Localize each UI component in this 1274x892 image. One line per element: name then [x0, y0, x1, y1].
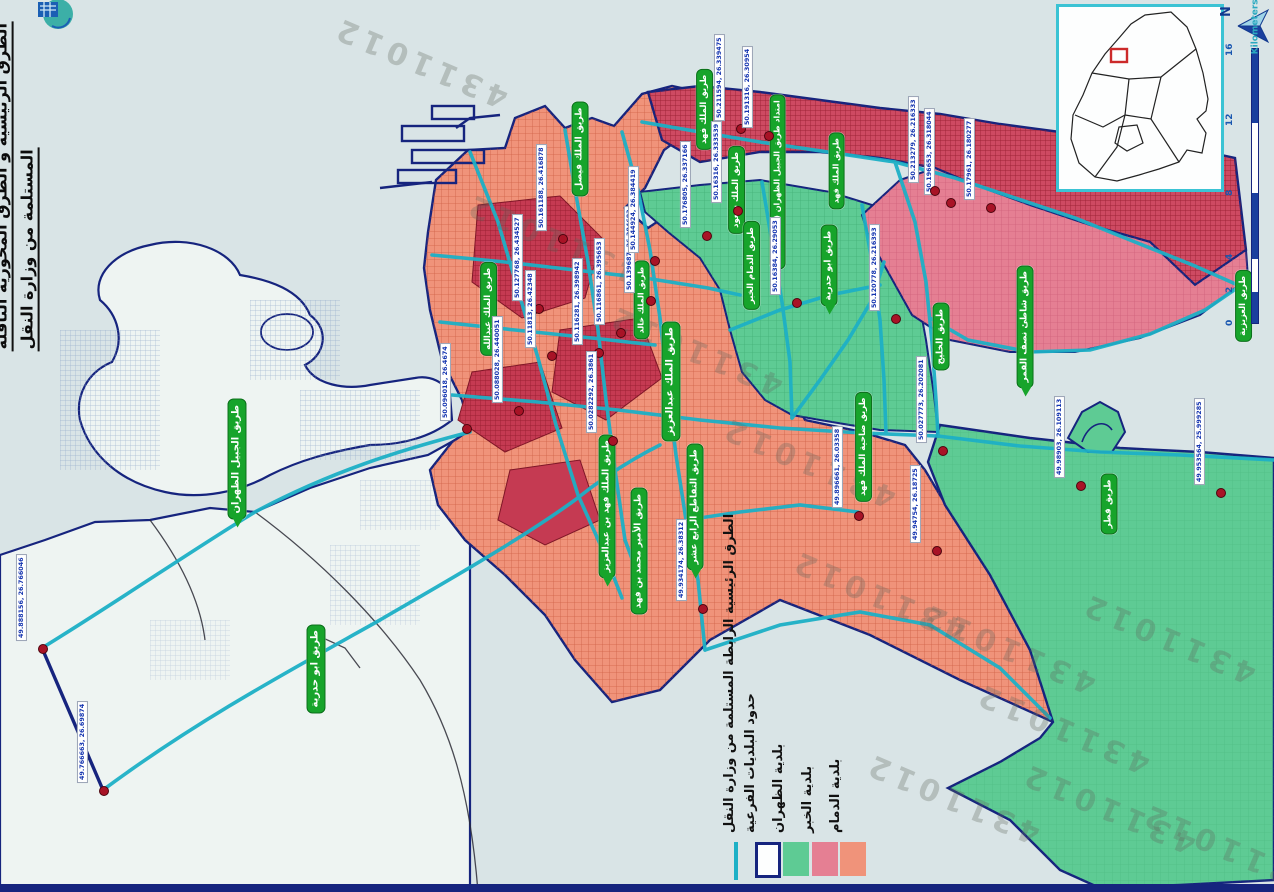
coordinate-label: 49.953564, 25.999285 — [1194, 398, 1205, 485]
junction-dot — [986, 203, 996, 213]
junction-dot — [650, 256, 660, 266]
coordinate-label: 50.096018, 26.4674 — [440, 343, 451, 421]
coordinate-label: 49.98903, 26.109113 — [1054, 396, 1065, 478]
junction-dot — [946, 198, 956, 208]
coordinate-label: 49.934174, 26.38312 — [676, 519, 687, 601]
coordinate-label: 50.0282292, 26.3861 — [586, 351, 597, 433]
coordinate-label: 50.191316, 26.30954 — [742, 46, 753, 128]
coordinate-label: 50.088028, 26.440051 — [492, 316, 503, 403]
legend-label: بلدية الخبر — [800, 766, 815, 833]
junction-dot — [733, 206, 743, 216]
coordinate-label: 50.176805, 26.337166 — [680, 141, 691, 228]
north-label: N — [1219, 6, 1234, 17]
legend-swatch-khobar — [812, 842, 838, 876]
junction-dot — [99, 786, 109, 796]
junction-dot — [932, 546, 942, 556]
coordinate-label: 50.116861, 26.395653 — [594, 238, 605, 325]
coordinate-label: 50.127768, 26.434527 — [512, 214, 523, 301]
coordinate-label: 50.027773, 26.202081 — [916, 356, 927, 443]
coordinate-label: 49.896661, 26.03358 — [832, 426, 843, 508]
junction-dot — [1076, 481, 1086, 491]
page-title-line2: المستلمة من وزارة النقل — [19, 147, 40, 351]
legend-swatch-dammam — [840, 842, 866, 876]
junction-dot — [38, 644, 48, 654]
junction-dot — [514, 406, 524, 416]
coordinate-label: 50.116281, 26.398942 — [572, 258, 583, 345]
coordinate-label: 50.17961, 26.180277 — [964, 118, 975, 200]
coordinate-label: 50.16316, 26.333539 — [711, 121, 722, 203]
junction-dot — [462, 424, 472, 434]
junction-dot — [616, 328, 626, 338]
legend-swatch-road-line — [734, 842, 738, 880]
coordinate-label: 50.144924, 26.384419 — [628, 166, 639, 253]
coordinate-label: 49.766663, 26.69874 — [77, 701, 88, 783]
coordinate-label: 50.213279, 26.216333 — [908, 96, 919, 183]
municipality-logo — [30, 0, 82, 40]
coordinate-label: 49.888156, 26.766046 — [16, 554, 27, 641]
legend-swatch-dhahran — [783, 842, 809, 876]
coordinate-label: 50.161188, 26.416878 — [536, 144, 547, 231]
junction-dot — [558, 234, 568, 244]
coordinate-label: 49.94754, 26.18725 — [910, 465, 921, 543]
legend-label: حدود البلديات الفرعية — [743, 693, 758, 833]
legend-swatch-boundary-box — [755, 842, 781, 878]
junction-dot — [764, 131, 774, 141]
page-title-line1: الطرق الرئيسية و الطرق المحورية الناقلة — [0, 21, 14, 351]
inset-outline — [1059, 7, 1221, 189]
junction-dot — [792, 298, 802, 308]
junction-dot — [938, 446, 948, 456]
scale-bar — [1251, 48, 1259, 324]
coordinate-label: 50.196653, 26.318044 — [924, 108, 935, 195]
junction-dot — [698, 604, 708, 614]
scale-unit-label: Kilometers — [1251, 0, 1261, 54]
junction-dot — [1216, 488, 1226, 498]
junction-dot — [547, 351, 557, 361]
page-bottom-border — [0, 884, 1274, 892]
coordinate-label: 50.16384, 26.29053 — [770, 217, 781, 295]
map-page: 4311012431101243110124311012431101243110… — [0, 0, 1274, 892]
junction-dot — [608, 436, 618, 446]
junction-dot — [646, 296, 656, 306]
junction-dot — [891, 314, 901, 324]
inset-extent-marker — [1111, 49, 1127, 62]
junction-dot — [930, 186, 940, 196]
coordinate-label: 50.11813, 26.42348 — [525, 270, 536, 348]
legend-label: بلدية الظهران — [771, 744, 786, 833]
legend-label: الطرق الرئيسية الرابطة المستلمة من وزارة… — [722, 514, 737, 833]
junction-dot — [854, 511, 864, 521]
junction-dot — [702, 231, 712, 241]
legend-label: بلدية الدمام — [828, 759, 843, 833]
coordinate-label: 50.120778, 26.216393 — [869, 224, 880, 311]
location-inset-map — [1056, 4, 1224, 192]
coordinate-label: 50.211594, 26.339475 — [714, 34, 725, 121]
